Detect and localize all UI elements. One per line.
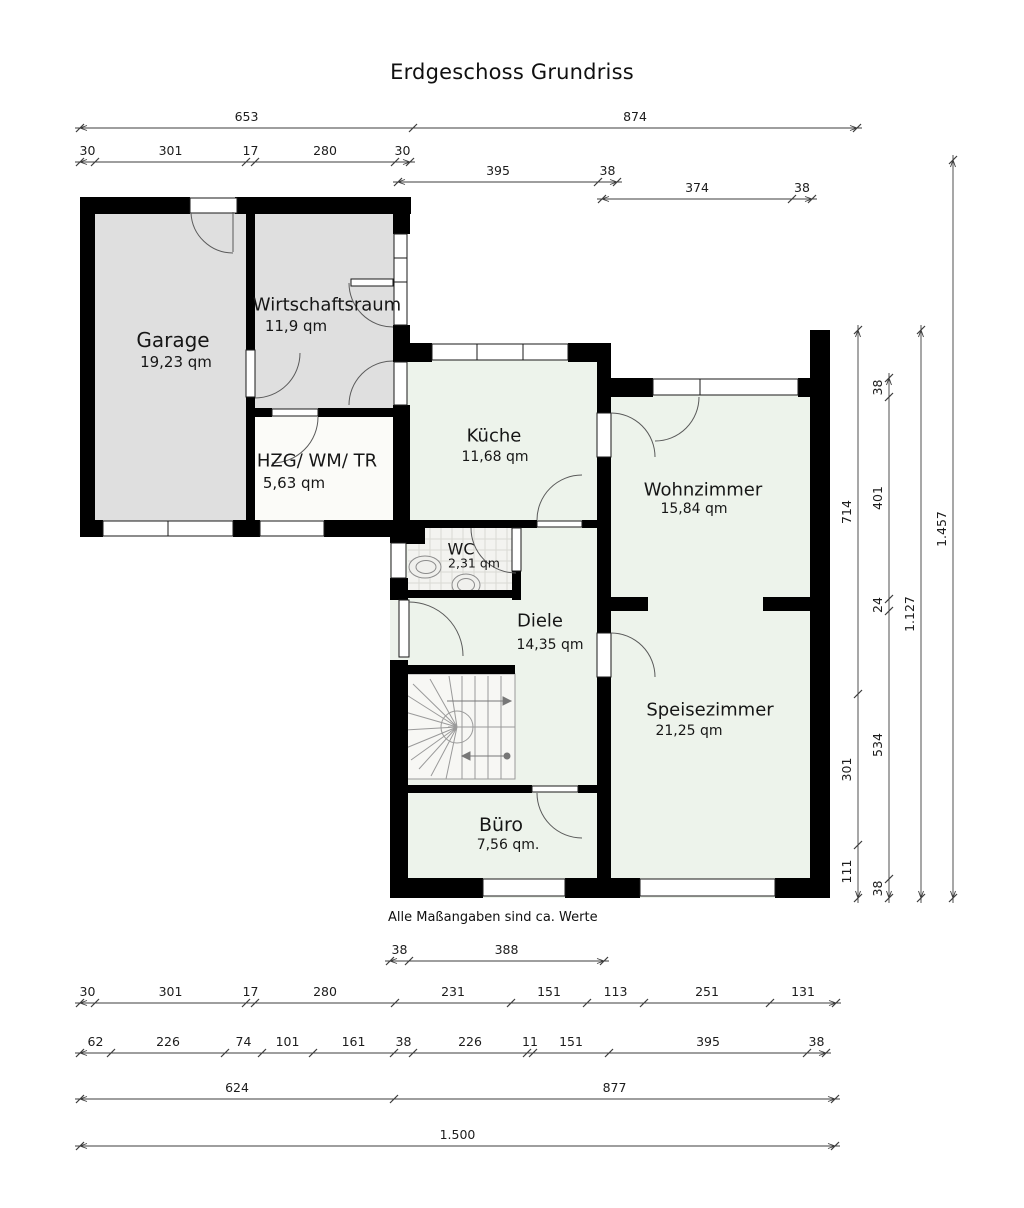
dimension-label: 24 xyxy=(870,597,885,613)
dimension-label: 161 xyxy=(342,1034,366,1049)
window xyxy=(483,879,565,896)
dimension-label: 374 xyxy=(685,180,709,195)
window xyxy=(103,521,233,536)
window xyxy=(391,543,406,578)
room-name-wohnzimmer: Wohnzimmer xyxy=(644,480,763,501)
room-area-wohnzimmer: 15,84 qm xyxy=(660,501,727,517)
dimension-label: 113 xyxy=(604,984,628,999)
door-opening xyxy=(512,528,521,571)
dimension-label: 111 xyxy=(839,860,854,884)
door-opening xyxy=(394,362,407,405)
window xyxy=(260,521,324,536)
floorplan-page: { "title": "Erdgeschoss Grundriss", "not… xyxy=(0,0,1024,1208)
dimension-label: 624 xyxy=(225,1080,249,1095)
room-name-garage: Garage xyxy=(136,328,209,352)
dimension-label: 874 xyxy=(623,109,647,124)
room-name-diele: Diele xyxy=(517,611,563,632)
door-opening xyxy=(597,633,611,677)
dimension-label: 151 xyxy=(559,1034,583,1049)
dimension-label: 301 xyxy=(159,143,183,158)
dimension-label: 395 xyxy=(486,163,510,178)
door-leaf xyxy=(351,279,393,286)
dimension-label: 11 xyxy=(522,1034,538,1049)
room-name-speisezimmer: Speisezimmer xyxy=(646,700,773,721)
dimension-label: 38 xyxy=(392,942,408,957)
dimension-label: 1.457 xyxy=(934,511,949,547)
dimension-label: 401 xyxy=(870,486,885,510)
dimension-label: 101 xyxy=(276,1034,300,1049)
entry-door-leaf xyxy=(399,600,409,657)
dimension-label: 131 xyxy=(791,984,815,999)
dimension-label: 38 xyxy=(396,1034,412,1049)
dimension-label: 653 xyxy=(235,109,259,124)
wohn-speise-floor xyxy=(605,383,827,898)
dimension-label: 1.500 xyxy=(440,1127,476,1142)
dimension-label: 38 xyxy=(600,163,616,178)
dimension-label: 1.127 xyxy=(902,596,917,632)
floorplan-svg: 6538743030117280303953837438383883030117… xyxy=(0,0,1024,1208)
dimension-label: 62 xyxy=(88,1034,104,1049)
dimension-label: 38 xyxy=(794,180,810,195)
room-area-garage: 19,23 qm xyxy=(140,353,212,371)
window xyxy=(394,234,407,282)
dimension-label: 395 xyxy=(696,1034,720,1049)
dimension-label: 714 xyxy=(839,500,854,524)
room-name-buero: Büro xyxy=(479,814,523,836)
room-area-wc: 2,31 qm xyxy=(448,556,500,571)
dimension-label: 534 xyxy=(870,733,885,757)
dimension-label: 231 xyxy=(441,984,465,999)
door-opening xyxy=(537,521,582,527)
window xyxy=(700,379,798,395)
room-area-diele: 14,35 qm xyxy=(516,637,583,653)
dimension-label: 30 xyxy=(80,984,96,999)
room-name-wirtschaftsraum: Wirtschaftsraum xyxy=(253,295,401,316)
room-name-hzg: HZG/ WM/ TR xyxy=(257,451,377,472)
stairs xyxy=(405,674,515,779)
dimension-label: 226 xyxy=(156,1034,180,1049)
dimension-label: 38 xyxy=(870,881,885,897)
dimension-label: 301 xyxy=(159,984,183,999)
door-opening xyxy=(272,409,318,416)
room-area-buero: 7,56 qm. xyxy=(477,837,540,853)
note-text: Alle Maßangaben sind ca. Werte xyxy=(388,910,598,925)
dimension-label: 280 xyxy=(313,143,337,158)
dimension-label: 30 xyxy=(80,143,96,158)
door-opening xyxy=(532,786,578,792)
dimension-label: 74 xyxy=(236,1034,252,1049)
window xyxy=(640,879,775,896)
dimension-label: 877 xyxy=(603,1080,627,1095)
terrace-door-pane xyxy=(653,379,700,395)
dimension-label: 38 xyxy=(870,380,885,396)
room-area-hzg: 5,63 qm xyxy=(263,474,325,492)
dimension-label: 151 xyxy=(537,984,561,999)
dimension-label: 17 xyxy=(243,143,259,158)
dimension-label: 226 xyxy=(458,1034,482,1049)
dimension-label: 301 xyxy=(839,758,854,782)
room-area-kueche: 11,68 qm xyxy=(461,449,528,465)
room-area-wirtschaftsraum: 11,9 qm xyxy=(265,317,327,335)
room-name-kueche: Küche xyxy=(467,426,522,447)
dimension-label: 38 xyxy=(809,1034,825,1049)
dimension-label: 388 xyxy=(495,942,519,957)
room-area-speisezimmer: 21,25 qm xyxy=(655,723,722,739)
dimension-label: 17 xyxy=(243,984,259,999)
window xyxy=(432,344,568,360)
sink-icon xyxy=(409,556,441,578)
garage-door-opening xyxy=(190,198,237,213)
door-opening xyxy=(597,413,611,457)
dimension-label: 30 xyxy=(395,143,411,158)
dimension-label: 280 xyxy=(313,984,337,999)
door-opening xyxy=(246,350,255,397)
dimension-label: 251 xyxy=(695,984,719,999)
